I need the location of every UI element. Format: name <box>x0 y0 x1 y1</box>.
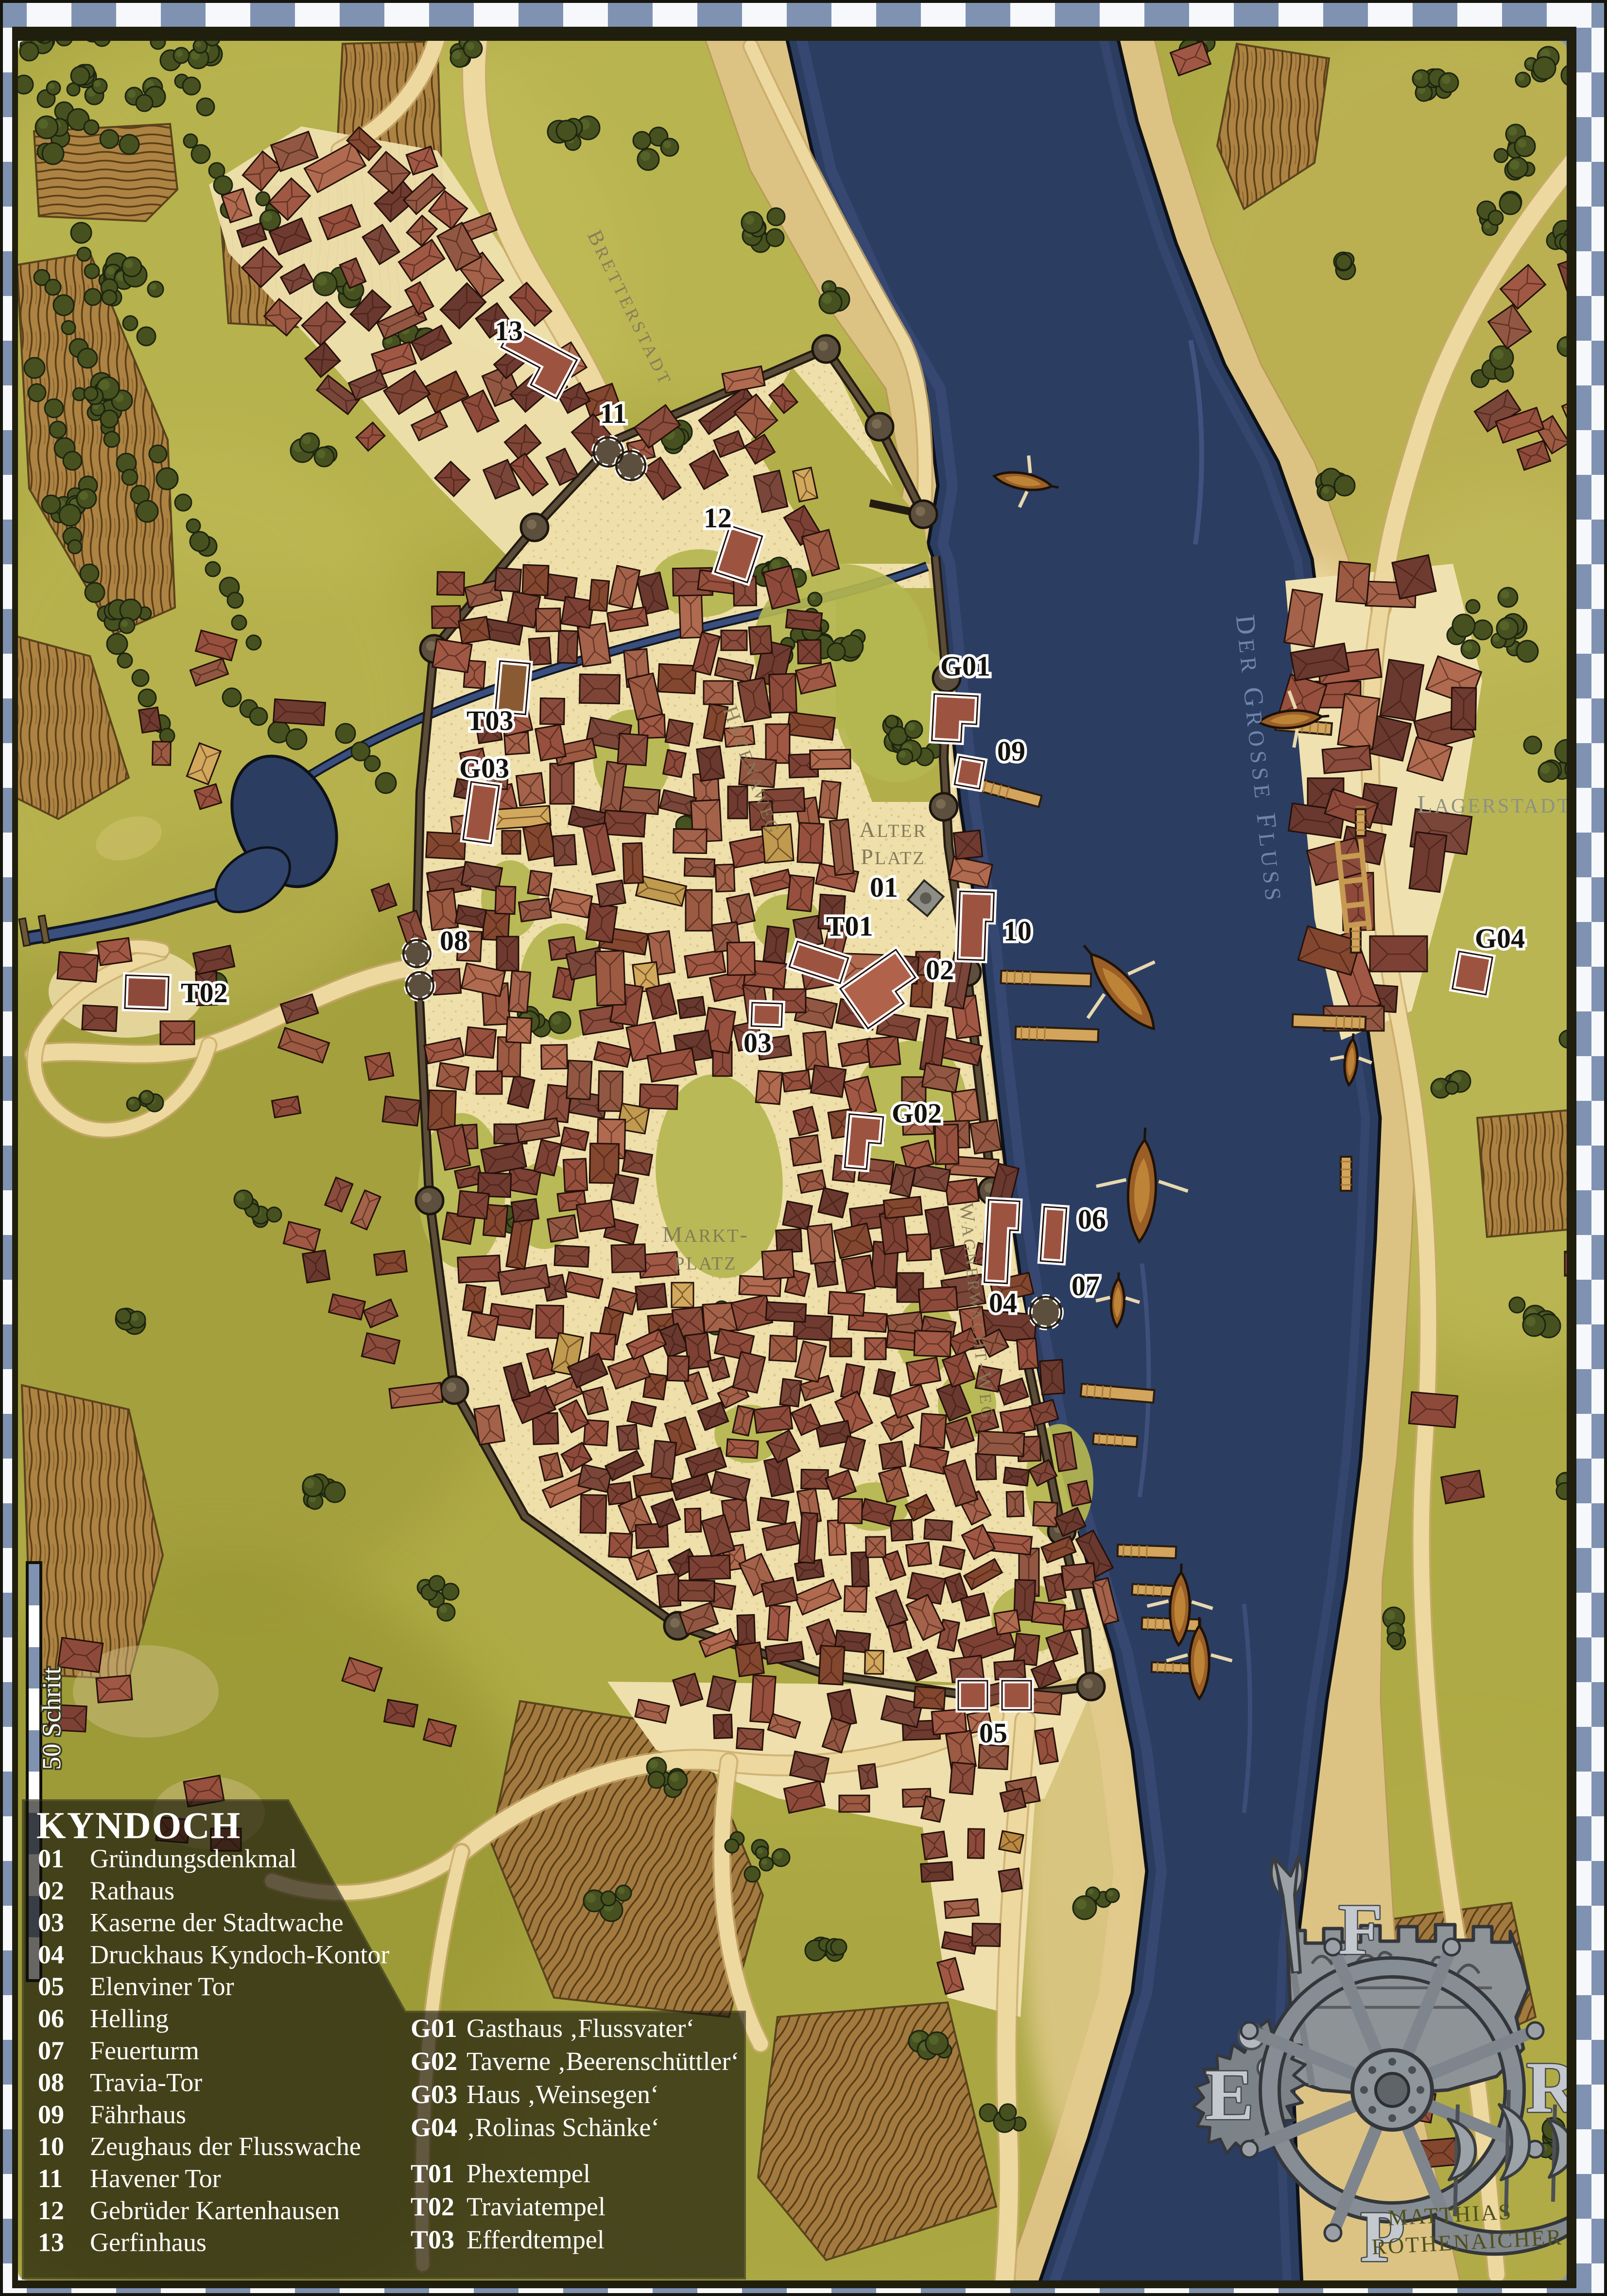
svg-text:04: 04 <box>989 1287 1017 1319</box>
svg-text:PLATZ: PLATZ <box>861 844 925 869</box>
svg-text:Traviatempel: Traviatempel <box>467 2192 605 2221</box>
svg-text:06: 06 <box>38 2004 64 2033</box>
svg-text:Fährhaus: Fährhaus <box>90 2100 186 2129</box>
svg-text:G03: G03 <box>459 752 509 784</box>
svg-text:13: 13 <box>38 2228 64 2257</box>
svg-text:05: 05 <box>38 1972 64 2001</box>
svg-text:F: F <box>1338 1889 1383 1970</box>
svg-text:11: 11 <box>38 2164 63 2193</box>
svg-text:Gebrüder Kartenhausen: Gebrüder Kartenhausen <box>90 2196 340 2225</box>
svg-text:Havener Tor: Havener Tor <box>90 2164 221 2193</box>
svg-text:03: 03 <box>743 1027 772 1059</box>
svg-text:MARKT-: MARKT- <box>662 1222 749 1247</box>
svg-text:08: 08 <box>440 925 468 957</box>
svg-text:G02: G02 <box>411 2047 457 2076</box>
svg-text:G04: G04 <box>411 2113 457 2142</box>
svg-text:G03: G03 <box>411 2080 457 2109</box>
svg-text:G02: G02 <box>892 1097 942 1129</box>
svg-text:01: 01 <box>870 871 898 903</box>
svg-text:01: 01 <box>38 1844 64 1873</box>
svg-text:Gründungsdenkmal: Gründungsdenkmal <box>90 1844 297 1873</box>
svg-text:06: 06 <box>1078 1203 1106 1235</box>
svg-text:02: 02 <box>38 1876 64 1905</box>
svg-text:Elenviner Tor: Elenviner Tor <box>90 1972 234 2001</box>
svg-text:11: 11 <box>600 398 627 429</box>
svg-text:T02: T02 <box>411 2192 454 2221</box>
svg-text:10: 10 <box>1003 915 1032 947</box>
svg-text:LAGERSTADT: LAGERSTADT <box>1417 791 1572 818</box>
svg-text:‚Rolinas Schänke‘: ‚Rolinas Schänke‘ <box>467 2113 659 2142</box>
svg-text:G01: G01 <box>940 650 990 682</box>
svg-text:Phextempel: Phextempel <box>467 2159 590 2188</box>
svg-text:05: 05 <box>979 1717 1007 1749</box>
svg-text:Kaserne der Stadtwache: Kaserne der Stadtwache <box>90 1908 344 1937</box>
svg-text:KYNDOCH: KYNDOCH <box>36 1804 241 1846</box>
svg-text:PLATZ: PLATZ <box>674 1253 737 1274</box>
svg-text:Zeughaus der Flusswache: Zeughaus der Flusswache <box>90 2132 361 2161</box>
svg-text:09: 09 <box>997 735 1025 767</box>
svg-text:07: 07 <box>38 2036 64 2065</box>
svg-text:12: 12 <box>38 2196 64 2225</box>
svg-text:T02: T02 <box>181 977 228 1009</box>
svg-text:04: 04 <box>38 1940 64 1969</box>
svg-text:E: E <box>1205 2054 1254 2135</box>
svg-text:Gasthaus ‚Flussvater‘: Gasthaus ‚Flussvater‘ <box>467 2014 694 2043</box>
svg-text:T01: T01 <box>826 910 873 942</box>
svg-text:T03: T03 <box>467 705 514 736</box>
svg-text:Gerfinhaus: Gerfinhaus <box>90 2228 207 2257</box>
svg-text:Haus ‚Weinsegen‘: Haus ‚Weinsegen‘ <box>467 2080 659 2109</box>
svg-text:Rathaus: Rathaus <box>90 1876 174 1905</box>
svg-text:G04: G04 <box>1475 922 1525 954</box>
svg-text:02: 02 <box>926 954 954 986</box>
svg-text:08: 08 <box>38 2068 64 2097</box>
svg-text:12: 12 <box>704 502 732 534</box>
svg-text:50 Schritt: 50 Schritt <box>37 1667 66 1770</box>
svg-text:Travia-Tor: Travia-Tor <box>90 2068 202 2097</box>
svg-text:13: 13 <box>495 315 523 347</box>
svg-text:Efferdtempel: Efferdtempel <box>467 2225 605 2254</box>
svg-text:Feuerturm: Feuerturm <box>90 2036 199 2065</box>
svg-text:Taverne ‚Beerenschüttler‘: Taverne ‚Beerenschüttler‘ <box>467 2047 739 2076</box>
svg-text:03: 03 <box>38 1908 64 1937</box>
svg-text:09: 09 <box>38 2100 64 2129</box>
svg-text:10: 10 <box>38 2132 64 2161</box>
svg-text:ALTER: ALTER <box>859 817 927 842</box>
svg-text:Helling: Helling <box>90 2004 169 2033</box>
svg-text:T01: T01 <box>411 2159 454 2188</box>
svg-text:G01: G01 <box>411 2014 457 2043</box>
svg-text:Druckhaus Kyndoch-Kontor: Druckhaus Kyndoch-Kontor <box>90 1940 389 1969</box>
svg-text:07: 07 <box>1071 1270 1100 1302</box>
svg-text:T03: T03 <box>411 2225 454 2254</box>
